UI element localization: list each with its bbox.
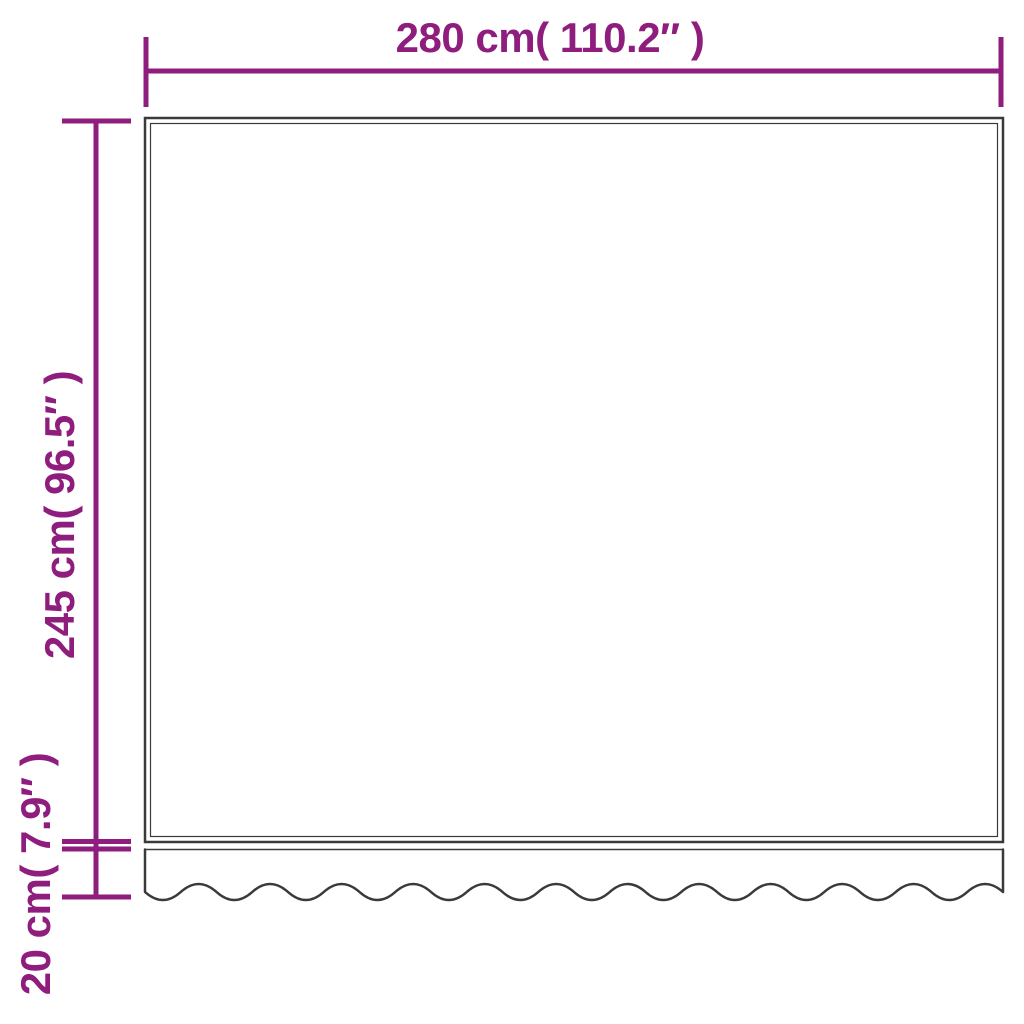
valance-dimension-label: 20 cm( 7.9″ ) xyxy=(15,753,57,995)
height-dimension-label: 245 cm( 96.5″ ) xyxy=(39,371,81,659)
fabric-panel-group xyxy=(145,118,1003,900)
dimension-lines-group xyxy=(62,37,1001,897)
valance-outline xyxy=(145,850,1003,901)
width-dimension-label: 280 cm( 110.2″ ) xyxy=(396,17,705,59)
fabric-panel-inner-line xyxy=(151,124,998,837)
awning-fabric-dimension-diagram: 280 cm( 110.2″ ) 245 cm( 96.5″ ) 20 cm( … xyxy=(0,0,1024,1024)
diagram-graphics xyxy=(0,0,1024,1024)
fabric-panel-outline xyxy=(145,118,1003,842)
